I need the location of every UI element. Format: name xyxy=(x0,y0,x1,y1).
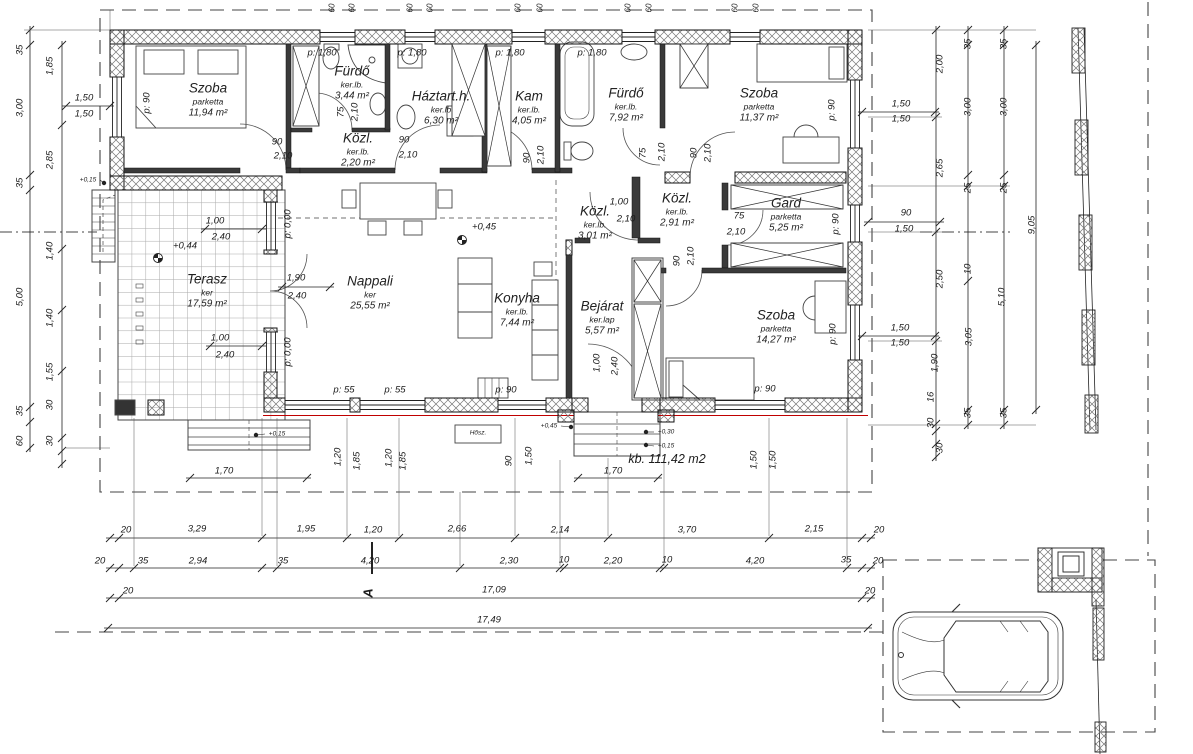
car xyxy=(893,604,1063,708)
desk xyxy=(803,281,846,333)
bathtub xyxy=(560,42,594,126)
shower-corner xyxy=(348,45,386,83)
toilet xyxy=(323,44,339,69)
parking-area-outline xyxy=(883,560,1155,732)
bed-double xyxy=(136,46,246,128)
desk xyxy=(783,125,839,163)
toilet xyxy=(564,142,593,160)
floor-plan: 60606060606060606060p: 1,80p: 1,80p: 1,8… xyxy=(0,0,1193,754)
washbasin xyxy=(397,105,415,129)
total-area-label: kb. 111,42 m2 xyxy=(628,452,705,466)
gate-pillar xyxy=(1038,548,1104,606)
washbasin xyxy=(621,44,647,60)
section-marker-a: A xyxy=(361,588,376,597)
plan-drawing xyxy=(0,0,1193,754)
entrance-steps xyxy=(574,412,660,456)
heat-pump-unit xyxy=(455,425,501,443)
bed-single xyxy=(757,44,847,82)
dining-table xyxy=(342,183,452,235)
kitchen-counter xyxy=(458,258,558,398)
bed-single xyxy=(666,358,754,400)
washbasin xyxy=(370,93,386,115)
